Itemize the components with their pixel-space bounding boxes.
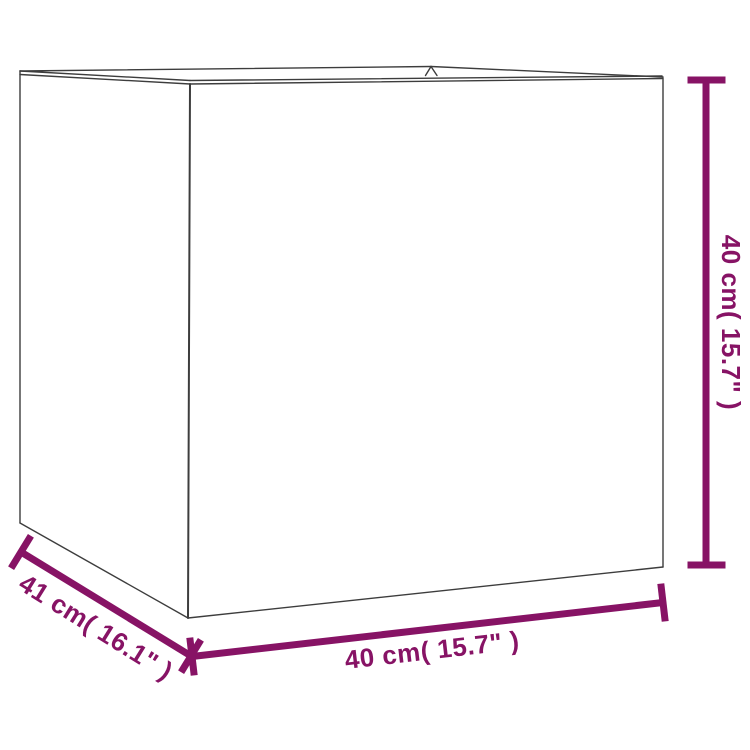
height-dimension-label: 40 cm( 15.7" )	[716, 235, 746, 410]
front-left-vertical-edge	[188, 84, 190, 618]
depth-dimension-top-tick	[11, 536, 31, 568]
back-corner-notch-right-leg	[431, 67, 437, 76]
depth-dimension-label: 41 cm( 16.1" )	[14, 568, 179, 686]
back-rim-left-edge	[20, 67, 431, 72]
back-rim-right-edge	[431, 67, 663, 78]
back-corner-notch-left-leg	[426, 67, 432, 76]
width-dimension-label: 40 cm( 15.7" )	[343, 625, 521, 675]
dimension-lines	[11, 80, 725, 675]
width-dimension-right-tick	[661, 584, 665, 622]
product-dimension-image: 40 cm( 15.7" ) 40 cm( 15.7" ) 41 cm( 16.…	[0, 0, 750, 750]
planter-outline	[20, 67, 663, 619]
dimension-diagram-canvas: 40 cm( 15.7" ) 40 cm( 15.7" ) 41 cm( 16.…	[0, 0, 750, 750]
